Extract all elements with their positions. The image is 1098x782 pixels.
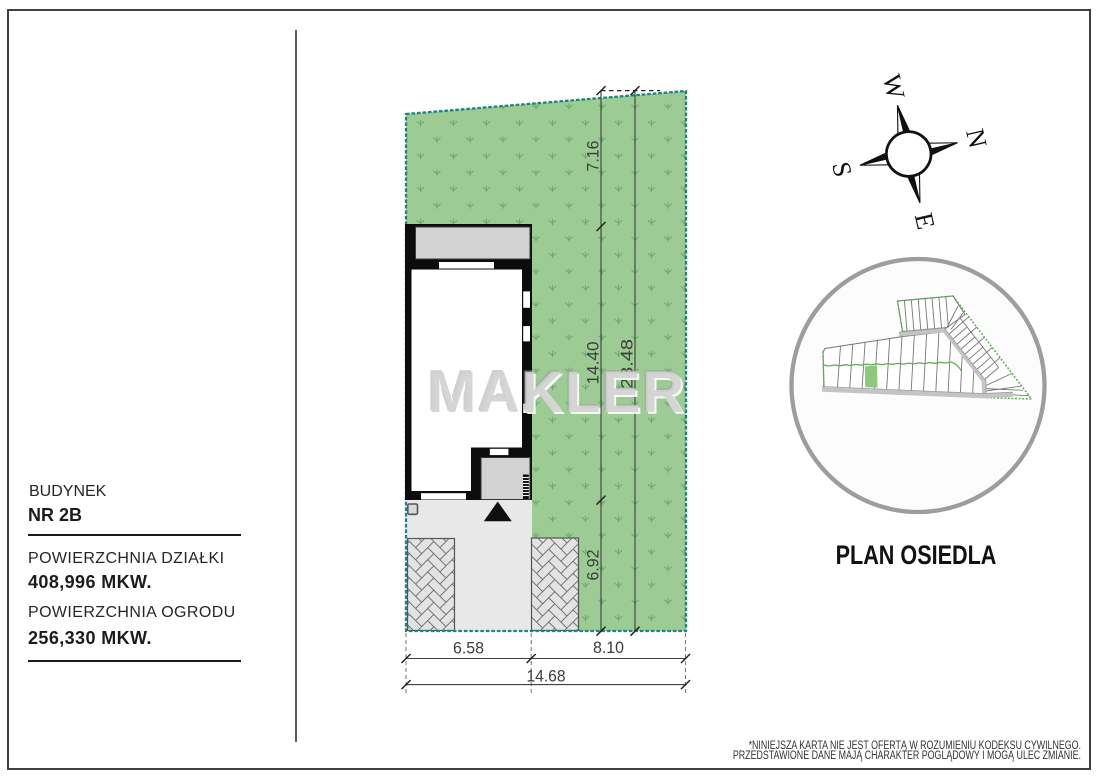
- svg-text:7.16: 7.16: [584, 141, 603, 172]
- svg-text:14.68: 14.68: [527, 667, 566, 686]
- svg-text:S: S: [826, 159, 858, 180]
- svg-text:N: N: [960, 126, 993, 151]
- svg-text:E: E: [909, 210, 941, 232]
- svg-text:W: W: [877, 71, 911, 102]
- svg-text:6.58: 6.58: [453, 639, 484, 658]
- svg-text:6.92: 6.92: [584, 550, 603, 581]
- svg-text:8.10: 8.10: [593, 638, 624, 657]
